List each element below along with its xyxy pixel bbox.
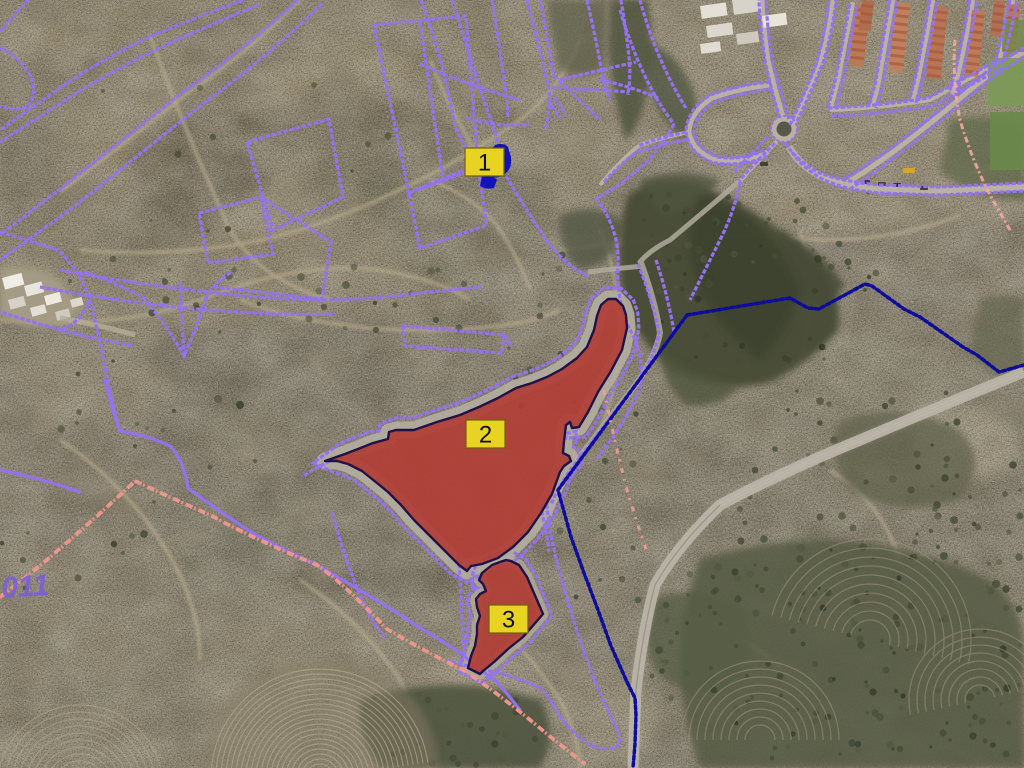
svg-text:3: 3	[502, 607, 515, 634]
svg-text:011: 011	[0, 569, 50, 605]
svg-text:1: 1	[478, 150, 491, 177]
svg-text:2: 2	[479, 422, 492, 449]
